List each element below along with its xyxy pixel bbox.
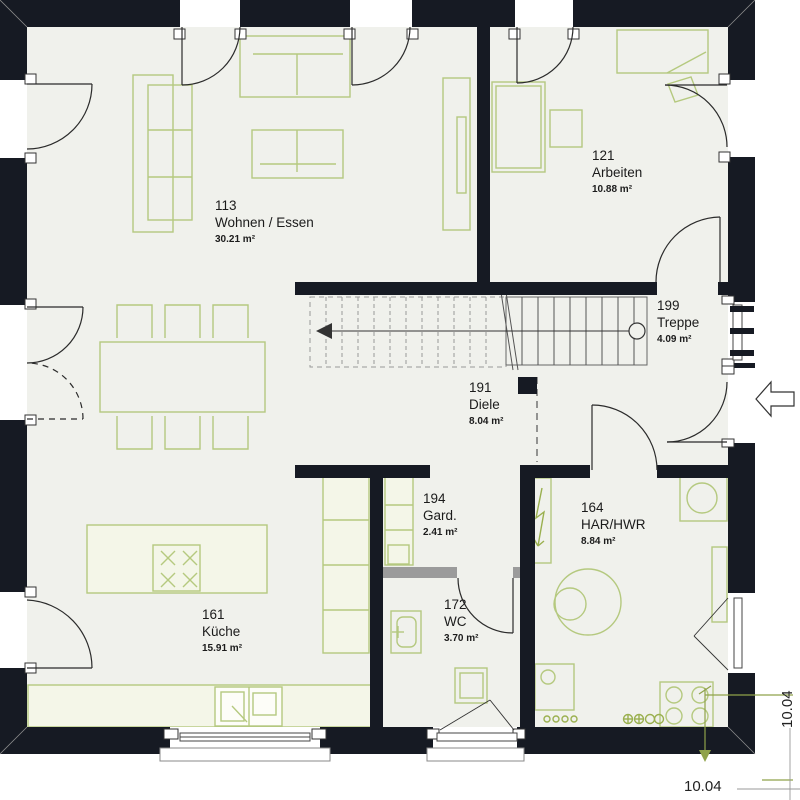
room-label-gard: 194 Gard. 2.41 m² <box>423 490 457 540</box>
room-area: 3.70 m² <box>444 632 478 646</box>
room-number: 164 <box>581 499 646 516</box>
room-label-kueche: 161 Küche 15.91 m² <box>202 606 242 656</box>
room-label-har-hwr: 164 HAR/HWR 8.84 m² <box>581 499 646 549</box>
room-label-diele: 191 Diele 8.04 m² <box>469 379 503 429</box>
dimension-right: 10.04 <box>779 684 796 728</box>
chimney-block <box>518 377 537 394</box>
room-label-arbeiten: 121 Arbeiten 10.88 m² <box>592 147 642 197</box>
room-label-wc: 172 WC 3.70 m² <box>444 596 478 646</box>
room-number: 172 <box>444 596 478 613</box>
room-area: 30.21 m² <box>215 233 314 247</box>
room-name: Treppe <box>657 314 699 331</box>
room-name: HAR/HWR <box>581 516 646 533</box>
room-number: 191 <box>469 379 503 396</box>
floor-plan: 113 Wohnen / Essen 30.21 m² 121 Arbeiten… <box>0 0 800 800</box>
floor-plan-drawing <box>0 0 800 800</box>
room-area: 4.09 m² <box>657 333 699 347</box>
room-area: 15.91 m² <box>202 642 242 656</box>
stair-walkline-circle <box>629 323 645 339</box>
room-name: Wohnen / Essen <box>215 214 314 231</box>
room-number: 113 <box>215 197 314 214</box>
room-name: Diele <box>469 396 503 413</box>
room-area: 8.04 m² <box>469 415 503 429</box>
room-number: 199 <box>657 297 699 314</box>
room-area: 8.84 m² <box>581 535 646 549</box>
furniture-wardrobe-gard <box>385 473 413 565</box>
room-area: 10.88 m² <box>592 183 642 197</box>
room-name: WC <box>444 613 478 630</box>
room-name: Küche <box>202 623 242 640</box>
room-number: 194 <box>423 490 457 507</box>
dimension-bottom: 10.04 <box>684 778 722 795</box>
kitchen-sink <box>215 687 282 726</box>
room-name: Arbeiten <box>592 164 642 181</box>
room-area: 2.41 m² <box>423 526 457 540</box>
room-label-wohnen-essen: 113 Wohnen / Essen 30.21 m² <box>215 197 314 247</box>
room-name: Gard. <box>423 507 457 524</box>
room-number: 161 <box>202 606 242 623</box>
room-number: 121 <box>592 147 642 164</box>
entrance-arrow-icon <box>756 382 794 416</box>
room-label-treppe: 199 Treppe 4.09 m² <box>657 297 699 347</box>
